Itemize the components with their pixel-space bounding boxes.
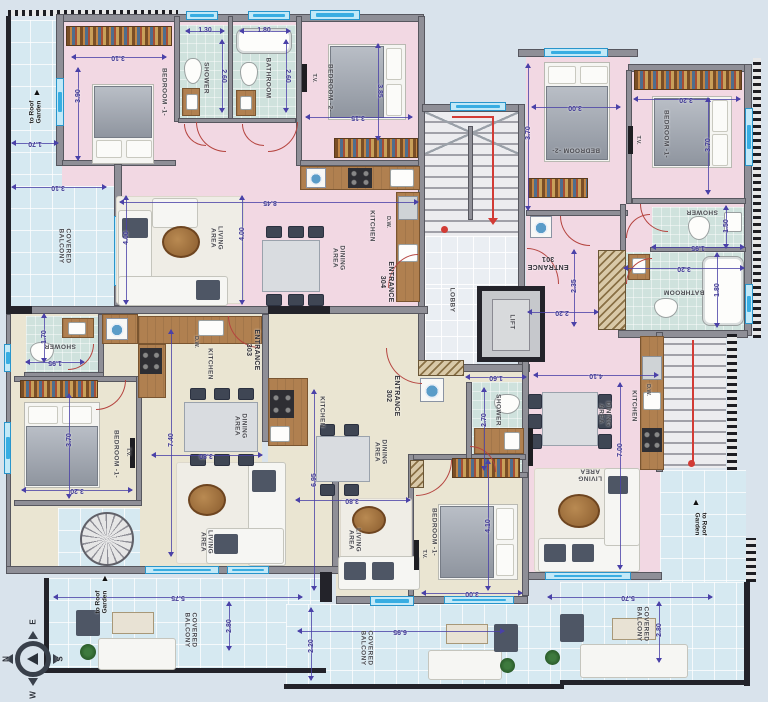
dimension-label: 3.10 (51, 183, 65, 191)
wall (14, 500, 142, 506)
dimension-label: 1.60 (489, 373, 503, 381)
compass-needle (27, 653, 38, 665)
bed-duvet (330, 46, 384, 118)
chair (214, 388, 230, 400)
pillow (386, 48, 402, 80)
dimension-line (126, 196, 127, 304)
room-label: BEDROOM -1- (430, 508, 437, 556)
balcony-door (370, 596, 414, 606)
bookshelf (20, 380, 98, 398)
stove (140, 348, 162, 374)
compass-letter: E (28, 619, 37, 624)
dimension-label: 3.90 (75, 89, 83, 103)
plant (80, 644, 96, 660)
dimension-label: 4.10 (589, 371, 603, 379)
dimension-label: 2.20 (308, 639, 316, 653)
room-label: KITCHEN (630, 390, 637, 422)
roof-garden-label: to Roof Garden (693, 513, 708, 536)
tv (628, 126, 633, 154)
sink (198, 320, 224, 336)
stair-path (492, 118, 494, 218)
chair (288, 226, 304, 238)
fixture-label: T.V. (635, 136, 641, 145)
pillow (580, 66, 608, 84)
pillow (62, 406, 92, 424)
dimension-label: 3.00 (568, 103, 582, 111)
cushion (608, 476, 628, 494)
bed-duvet (94, 86, 152, 138)
sink (270, 426, 290, 442)
wall-hatch (753, 58, 761, 338)
room-label: COVERED BALCONY (57, 229, 72, 264)
chair (528, 414, 542, 429)
balcony-302 (286, 604, 562, 686)
fridge (642, 356, 662, 380)
tv (528, 428, 533, 466)
dimension-label: 1.70 (41, 330, 49, 344)
room-label: COVERED BALCONY (359, 631, 374, 666)
window (56, 78, 64, 126)
pillow (28, 406, 58, 424)
cushion (544, 544, 566, 562)
window (248, 11, 290, 20)
dimension-label: 1.70 (28, 139, 42, 147)
balcony-rail (284, 684, 564, 689)
coffee-table (558, 494, 600, 528)
lobby (425, 236, 519, 288)
dimension-label: 3.20 (679, 95, 693, 103)
dimension-label: 1.80 (714, 283, 722, 297)
bookshelf (528, 178, 588, 198)
dimension-label: 3.15 (351, 113, 365, 121)
bookshelf (66, 26, 172, 46)
window (745, 284, 753, 324)
dimension-label: 3.00 (465, 589, 479, 597)
pillow (96, 140, 122, 158)
dimension-label: 6.95 (311, 473, 319, 487)
window (4, 422, 11, 474)
wall (6, 306, 32, 314)
chair (320, 484, 335, 496)
dimension-label: 3.80 (199, 451, 213, 459)
room-label: BATHROOM (664, 288, 705, 295)
external-stairs-301 (662, 334, 726, 468)
wall (6, 306, 428, 314)
tv (302, 64, 307, 92)
compass-arrow-top (28, 631, 38, 639)
fixture-label: D.W. (645, 384, 651, 396)
room-label: DINING AREA (597, 401, 612, 426)
dimension-line (78, 68, 79, 160)
room-label: DINING AREA (331, 245, 346, 270)
chair (190, 388, 206, 400)
bathtub (702, 256, 744, 326)
dimension-label: 1.80 (257, 27, 271, 35)
pillow (496, 508, 514, 540)
dimension-label: 1.30 (198, 27, 212, 35)
wall (174, 16, 180, 122)
wall (268, 306, 330, 314)
coffee-table (162, 226, 200, 258)
wall (6, 16, 11, 308)
dimension-label: 4.00 (123, 231, 131, 245)
pillow (712, 100, 728, 132)
window (4, 344, 11, 372)
chair (528, 394, 542, 409)
room-label: BEDROOM -1- (662, 110, 669, 158)
compass-letter: W (28, 691, 37, 699)
window (545, 572, 631, 580)
wall (320, 572, 332, 602)
dimension-line (242, 196, 243, 304)
room-label: SHOWER (202, 62, 209, 94)
outdoor-armchair (560, 614, 584, 642)
cushion (572, 544, 594, 562)
wall-hatch (727, 334, 737, 470)
window (745, 108, 753, 166)
plant (545, 650, 560, 665)
dimension-label: 3.70 (66, 433, 74, 447)
wardrobe (598, 250, 626, 330)
dimension-label: 3.20 (677, 264, 691, 272)
room-label: BATHROOM (264, 58, 271, 99)
roof-garden-label: to Roof Garden (95, 591, 110, 614)
room-label: LIVING AREA (199, 530, 214, 554)
fixture-label: D.W. (385, 216, 391, 228)
dining-table (316, 436, 370, 482)
balcony-rail (560, 680, 750, 685)
window (145, 566, 219, 574)
pillow (496, 544, 514, 576)
outdoor-sofa (98, 638, 176, 670)
closet-shelf (418, 360, 464, 376)
entrance-label: ENTRANCE 303 (244, 329, 260, 370)
dimension-label: 2.70 (481, 413, 489, 427)
dimension-label: 2.80 (656, 623, 664, 637)
dimension-label: 3.85 (375, 84, 383, 98)
dimension-label: 3.70 (705, 138, 713, 152)
outdoor-sofa (580, 644, 688, 678)
room-label: COVERED BALCONY (183, 613, 198, 648)
dining-table (262, 240, 320, 292)
dimension-label: 2.80 (226, 619, 234, 633)
room-label: LOBBY (448, 288, 455, 313)
cushion (252, 470, 276, 492)
cushion (196, 280, 220, 300)
compass-arrow-bottom (28, 678, 38, 686)
dimension-label: 4.00 (239, 227, 247, 241)
room-label: DINING AREA (373, 439, 388, 464)
dimension-label: 5.75 (171, 593, 185, 601)
chair (266, 226, 282, 238)
pillow (386, 84, 402, 116)
wall (24, 372, 104, 377)
washing-machine (306, 168, 326, 188)
fixture-label: T.V. (311, 74, 317, 83)
arrow-up-glyph: ▲ (101, 573, 110, 583)
sink (68, 322, 86, 335)
stair-path-start (441, 226, 448, 233)
room-label: KITCHEN (368, 210, 375, 242)
outdoor-rug (446, 624, 488, 644)
outdoor-armchair (76, 610, 100, 636)
stove (642, 428, 662, 452)
window (444, 596, 514, 604)
room-label: SHOWER (686, 208, 718, 215)
washing-machine (106, 318, 128, 340)
stair-path (692, 340, 694, 462)
dimension-label: 2.35 (571, 279, 579, 293)
room-label: KITCHEN (318, 396, 325, 428)
window (450, 102, 506, 111)
tv (414, 540, 419, 570)
pillow (548, 66, 576, 84)
chair (288, 294, 304, 306)
spiral-staircase (80, 512, 134, 566)
outdoor-sofa (428, 650, 502, 680)
dimension-label: 8.45 (263, 198, 277, 206)
fixture-label: T.V. (421, 550, 427, 559)
dimension-label: 1.50 (723, 219, 731, 233)
stair-path (452, 116, 494, 118)
room-label: LIVING AREA (347, 528, 362, 552)
chair (308, 294, 324, 306)
arrow-up-glyph: ▲ (692, 497, 701, 507)
cushion (344, 562, 366, 580)
window (186, 11, 218, 20)
cushion (372, 562, 394, 580)
room-label: BEDROOM -2- (552, 146, 600, 153)
dimension-label: 2.20 (555, 308, 569, 316)
room-label: LIFT (508, 314, 515, 329)
dimension-label: 1.95 (48, 358, 62, 366)
compass-letter: N (1, 656, 10, 662)
stove (348, 168, 372, 188)
compass-letter: S (55, 656, 64, 661)
bed-duvet (440, 506, 494, 578)
chair (344, 484, 359, 496)
dimension-line (484, 388, 485, 470)
outdoor-table (112, 612, 154, 634)
washing-machine (530, 216, 552, 238)
washing-machine (420, 378, 444, 402)
entrance-label: ENTRANCE 301 (527, 254, 568, 270)
chair (598, 434, 612, 449)
sink (504, 432, 520, 450)
dimension-label: 5.70 (621, 593, 635, 601)
bed-duvet (26, 426, 98, 486)
wall (228, 16, 233, 122)
window (310, 10, 360, 20)
room-label: COVERED BALCONY (635, 607, 650, 642)
bookshelf (634, 70, 742, 90)
dimension-label: 6.95 (393, 627, 407, 635)
fixture-label: D.W. (193, 336, 199, 348)
window (227, 566, 269, 574)
dimension-label: 2.60 (219, 69, 227, 83)
stair-divider (468, 126, 473, 220)
floor-plan: BEDROOM -1-SHOWERBATHROOMBEDROOM -2-LIVI… (0, 0, 768, 702)
wall (56, 14, 424, 22)
sink (186, 94, 198, 110)
dimension-label: 7.00 (617, 443, 625, 457)
dimension-label: 1.95 (691, 243, 705, 251)
room-label: LIVING AREA (578, 467, 602, 482)
sink (390, 169, 414, 187)
balcony-rail (744, 582, 750, 686)
wall-hatch (746, 538, 756, 582)
arrow-up-glyph: ▲ (33, 87, 42, 97)
roof-garden-label: to Roof Garden (29, 101, 44, 124)
bookshelf (334, 138, 418, 158)
entrance-label: ENTRANCE 302 (384, 375, 400, 416)
room-label: BEDROOM -2- (326, 64, 333, 112)
room-label: KITCHEN (206, 348, 213, 380)
stair-path-end (688, 460, 695, 467)
pillow (712, 134, 728, 166)
dimension-label: 4.10 (485, 519, 493, 533)
chair (266, 294, 282, 306)
sink (240, 96, 252, 110)
balcony-rail (44, 668, 326, 673)
dimension-label: 2.60 (283, 69, 291, 83)
coffee-table (188, 484, 226, 516)
window (544, 48, 608, 57)
stove (270, 390, 294, 418)
dimension-label: 3.20 (70, 486, 84, 494)
dining-table (542, 392, 598, 446)
dimension-label: 3.70 (525, 126, 533, 140)
fixture-label: T.V. (125, 448, 131, 457)
chair (238, 388, 254, 400)
pillow (126, 140, 152, 158)
room-label: LIVING AREA (209, 226, 224, 250)
dimension-line (620, 383, 621, 569)
entrance-label: ENTRANCE 304 (378, 261, 394, 302)
dimension-label: 3.80 (345, 496, 359, 504)
stair-path-arrow (488, 218, 498, 225)
cushion (214, 534, 238, 554)
chair (308, 226, 324, 238)
dimension-label: 7.40 (168, 433, 176, 447)
outdoor-armchair (494, 624, 518, 652)
chair (344, 424, 359, 436)
room-label: SHOWER (494, 394, 501, 426)
room-label: BEDROOM -1- (160, 68, 167, 116)
room-label: BEDROOM -1- (112, 430, 119, 478)
plant (500, 658, 515, 673)
dimension-line (314, 390, 315, 590)
room-label: DINING AREA (233, 413, 248, 438)
dimension-label: 3.10 (111, 53, 125, 61)
